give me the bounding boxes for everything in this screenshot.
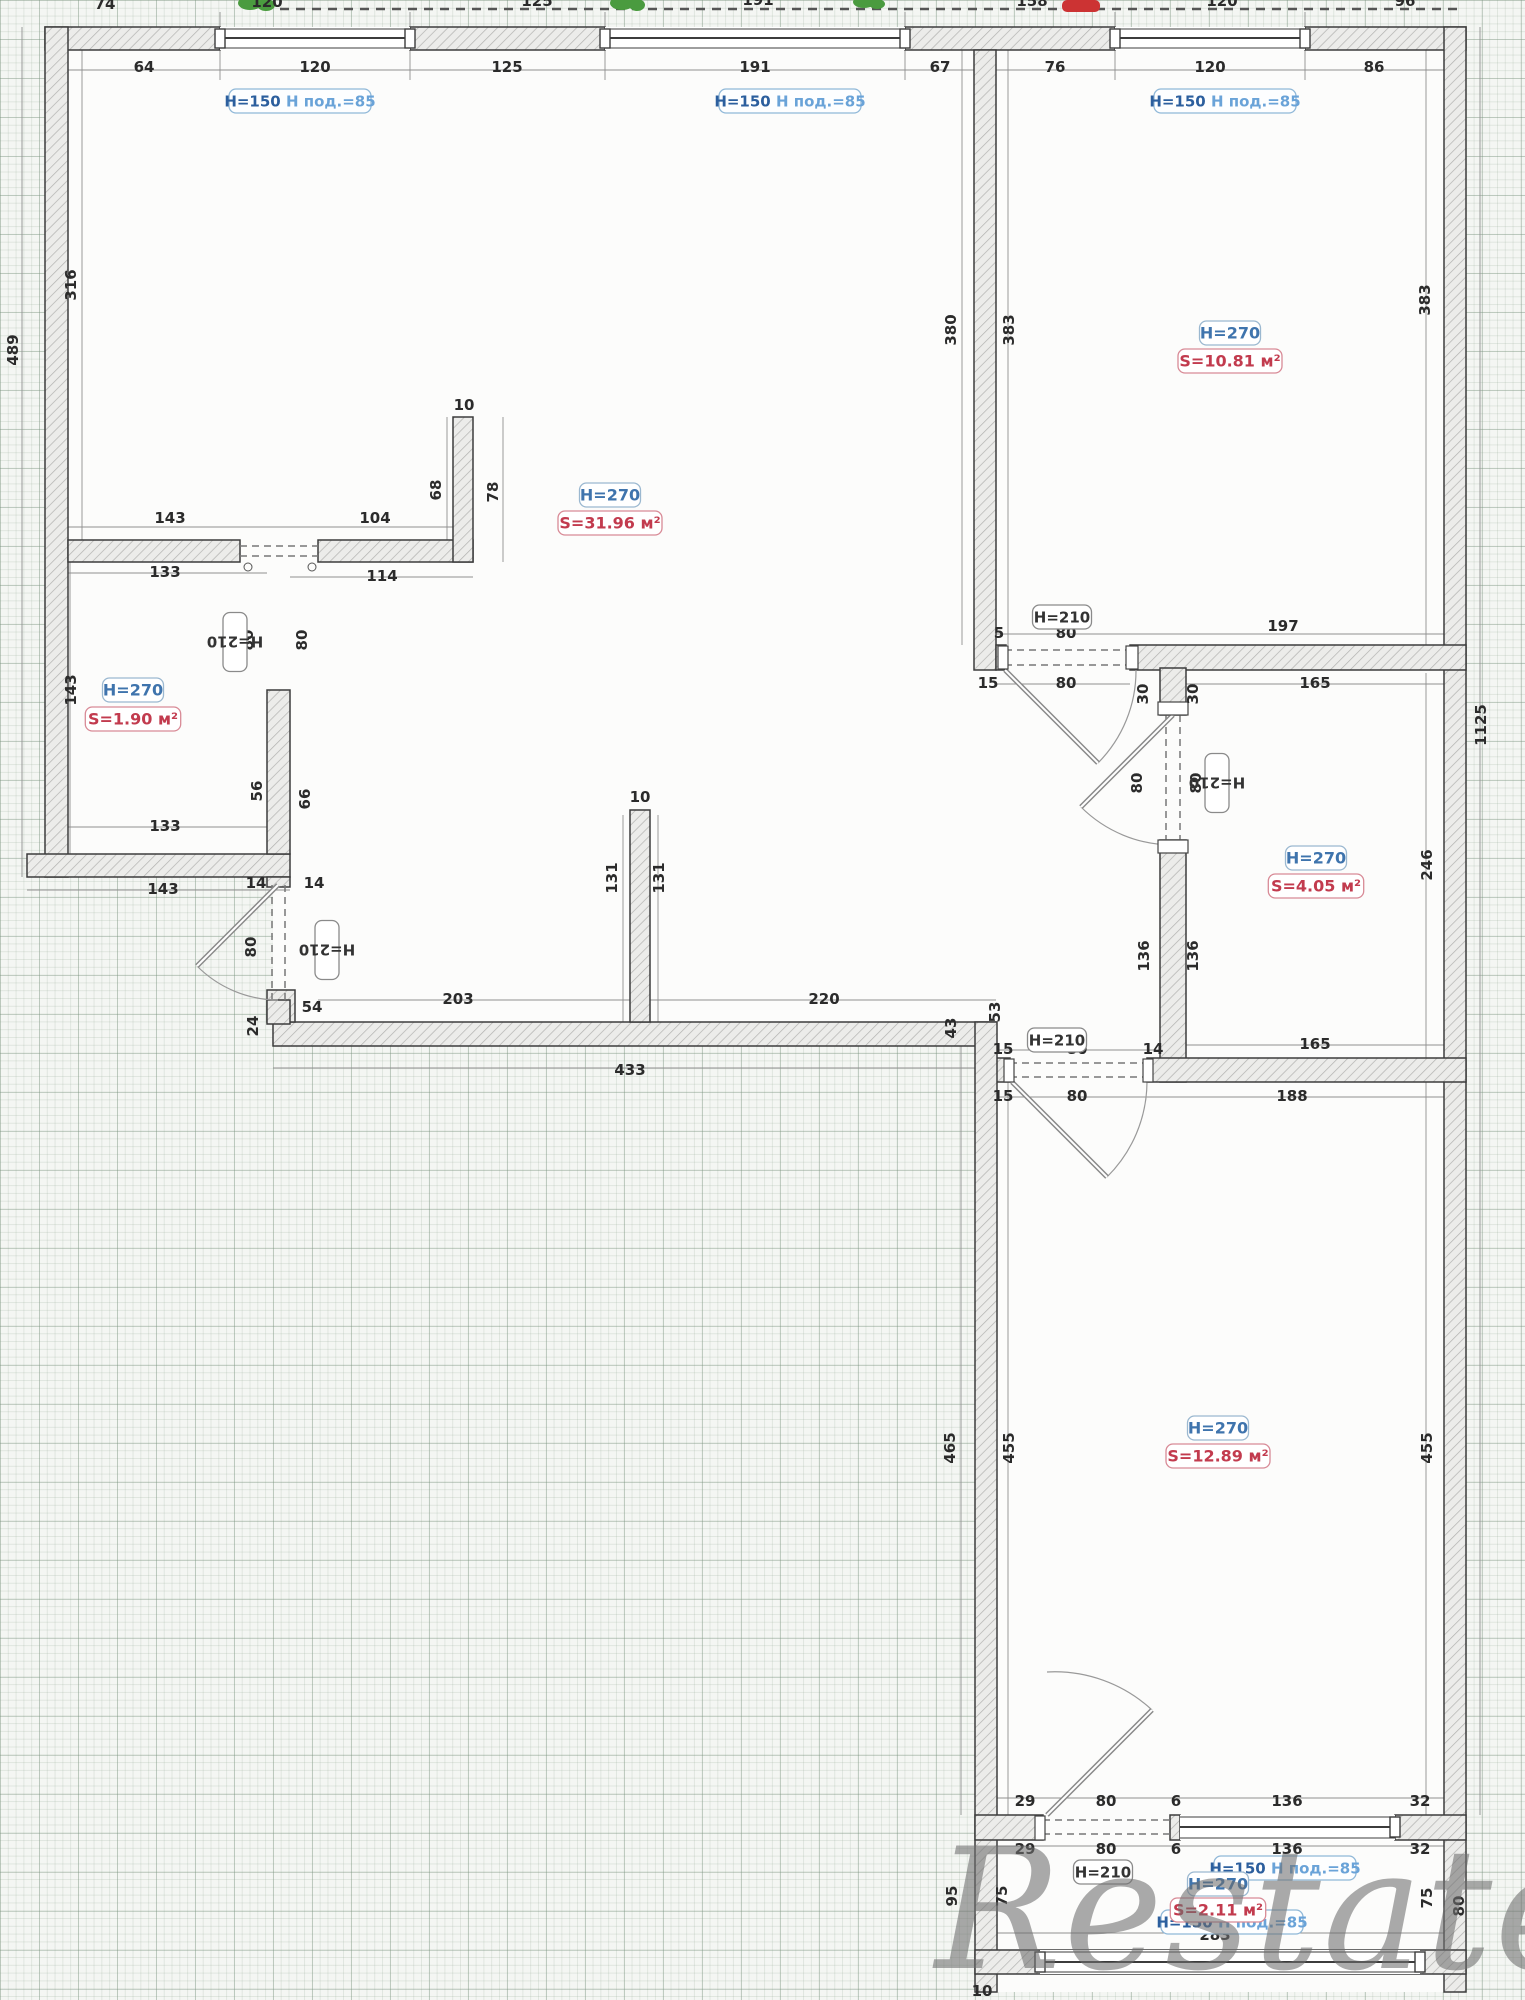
- dim-label: 136: [1271, 1792, 1302, 1810]
- window-height-label: H=150 H под.=85: [224, 89, 375, 113]
- dim-label: 24: [244, 1016, 262, 1037]
- dim-label: 191: [739, 58, 770, 76]
- dim-label: 114: [366, 567, 397, 585]
- dim-label: 29: [1015, 1840, 1036, 1858]
- dim-label: 80: [1128, 773, 1146, 794]
- dim-label: 54: [302, 998, 323, 1016]
- dim-label: 465: [941, 1432, 959, 1463]
- dim-label: 14: [304, 874, 325, 892]
- dim-label: 165: [1299, 674, 1330, 692]
- window-height-text: H=150 H под.=85: [1149, 93, 1300, 111]
- dim-label: 15: [978, 674, 999, 692]
- dim-label: 455: [1418, 1432, 1436, 1463]
- dim-label: 143: [62, 674, 80, 705]
- room-height-label: H=270: [1200, 321, 1261, 345]
- dim-label: 74: [95, 0, 116, 13]
- dim-label: 104: [359, 509, 390, 527]
- door-height-text: H=210: [1029, 1032, 1085, 1050]
- dim-label: 136: [1271, 1840, 1302, 1858]
- dim-label: 64: [134, 58, 155, 76]
- dim-label: 76: [1045, 58, 1066, 76]
- door-height-text: H=210: [1075, 1864, 1131, 1882]
- window: [600, 27, 910, 50]
- dim-label: 80: [1096, 1792, 1117, 1810]
- room-area-text: S=4.05 м²: [1271, 877, 1361, 896]
- dim-label: 86: [1364, 58, 1385, 76]
- door-height-text: H=210: [1189, 774, 1245, 792]
- room-height-label: H=270: [580, 483, 641, 507]
- dim-label: 68: [427, 480, 445, 501]
- plant-icon: [610, 0, 645, 11]
- dim-label: 43: [942, 1018, 960, 1039]
- dim-label: 455: [1000, 1432, 1018, 1463]
- room-height-text: H=270: [580, 486, 640, 505]
- window: [1180, 1815, 1400, 1840]
- dim-label: 197: [1267, 617, 1298, 635]
- dim-label: 80: [293, 630, 311, 651]
- dim-label: 15: [993, 1087, 1014, 1105]
- window-height-text: H=150 H под.=85: [714, 93, 865, 111]
- dim-label: 10: [972, 1982, 993, 2000]
- door-height-text: H=210: [1034, 609, 1090, 627]
- dim-label: 143: [154, 509, 185, 527]
- dim-label: 120: [299, 58, 330, 76]
- window: [1035, 1950, 1425, 1974]
- dim-label: 80: [242, 937, 260, 958]
- dim-label: 53: [986, 1002, 1004, 1023]
- dim-label: 5: [994, 624, 1004, 642]
- dim-label: 131: [650, 862, 668, 893]
- dim-label: 10: [630, 788, 651, 806]
- dim-label: 95: [943, 1886, 961, 1907]
- dim-label: 246: [1418, 849, 1436, 880]
- dim-label: 15: [993, 1040, 1014, 1058]
- dim-label: 188: [1276, 1087, 1307, 1105]
- room-area-label: S=1.90 м²: [85, 707, 180, 731]
- room-area-label: S=2.11 м²: [1170, 1898, 1265, 1922]
- room-area-label: S=10.81 м²: [1178, 349, 1282, 373]
- dim-label: 30: [1184, 684, 1202, 705]
- window: [215, 27, 415, 50]
- door-height-label: H=210: [1028, 1028, 1087, 1052]
- plant-icon: [853, 0, 885, 9]
- window-height-label: H=150 H под.=85: [1149, 89, 1300, 113]
- top-balcony-outline: [238, 0, 1460, 12]
- dim-label: 133: [149, 817, 180, 835]
- dim-label: 158: [1016, 0, 1047, 10]
- room-area-label: S=4.05 м²: [1268, 874, 1363, 898]
- room-height-label: H=270: [1188, 1416, 1249, 1440]
- window: [1110, 27, 1310, 50]
- floor-plan-page: 7412012519115812096641201251916776120863…: [0, 0, 1525, 2000]
- dim-label: 489: [4, 334, 22, 365]
- dim-label: 80: [1096, 1840, 1117, 1858]
- dim-label: 56: [248, 781, 266, 802]
- dim-label: 30: [1134, 684, 1152, 705]
- dim-label: 165: [1299, 1035, 1330, 1053]
- dim-label: 80: [1067, 1087, 1088, 1105]
- dim-label: 125: [521, 0, 552, 10]
- room-area-text: S=1.90 м²: [88, 710, 178, 729]
- dim-label: 66: [296, 789, 314, 810]
- dim-label: 120: [1206, 0, 1237, 10]
- dim-label: 67: [930, 58, 951, 76]
- window-height-label: H=150 H под.=85: [714, 89, 865, 113]
- room-area-label: S=31.96 м²: [558, 511, 662, 535]
- door-height-text: H=210: [299, 941, 355, 959]
- dim-label: 96: [1395, 0, 1416, 10]
- dim-label: 78: [484, 482, 502, 503]
- room-area-text: S=2.11 м²: [1173, 1901, 1263, 1920]
- dim-label: 10: [454, 396, 475, 414]
- door-height-label: H=210: [1074, 1860, 1133, 1884]
- floor-plan-drawing: 7412012519115812096641201251916776120863…: [0, 0, 1525, 2000]
- dim-label: 133: [149, 563, 180, 581]
- dim-label: 14: [246, 874, 267, 892]
- dim-label: 120: [1194, 58, 1225, 76]
- dim-label: 6: [1171, 1792, 1181, 1810]
- dim-label: 433: [614, 1061, 645, 1079]
- room-height-label: H=270: [103, 678, 164, 702]
- dim-label: 6: [1171, 1840, 1181, 1858]
- room-area-text: S=12.89 м²: [1167, 1447, 1268, 1466]
- dim-label: 32: [1410, 1840, 1431, 1858]
- room-area-text: S=10.81 м²: [1179, 352, 1280, 371]
- room-height-text: H=270: [1188, 1875, 1248, 1894]
- room-height-label: H=270: [1188, 1872, 1249, 1896]
- dim-label: 191: [742, 0, 773, 9]
- dim-label: 383: [1416, 284, 1434, 315]
- dim-label: 220: [808, 990, 839, 1008]
- dim-label: 75: [993, 1886, 1011, 1907]
- dim-label: 136: [1184, 940, 1202, 971]
- dim-label: 125: [491, 58, 522, 76]
- room-height-text: H=270: [1286, 849, 1346, 868]
- room-height-label: H=270: [1286, 846, 1347, 870]
- window-height-text: H=150 H под.=85: [224, 93, 375, 111]
- dim-label: 29: [1015, 1792, 1036, 1810]
- dim-label: 383: [1000, 314, 1018, 345]
- dim-label: 316: [62, 269, 80, 300]
- room-height-text: H=270: [1200, 324, 1260, 343]
- room-height-text: H=270: [1188, 1419, 1248, 1438]
- dim-label: 1125: [1472, 704, 1490, 746]
- room-area-text: S=31.96 м²: [559, 514, 660, 533]
- dim-label: 80: [1056, 674, 1077, 692]
- dim-label: 120: [251, 0, 282, 11]
- dim-label: 80: [1450, 1896, 1468, 1917]
- door-height-text: H=210: [207, 633, 263, 651]
- dim-label: 75: [1418, 1888, 1436, 1909]
- dim-label: 136: [1135, 940, 1153, 971]
- dim-label: 14: [1143, 1040, 1164, 1058]
- dim-label: 203: [442, 990, 473, 1008]
- room-area-label: S=12.89 м²: [1166, 1444, 1270, 1468]
- dim-label: 131: [603, 862, 621, 893]
- door-entrance: [197, 885, 285, 1000]
- red-mark: [1062, 0, 1100, 12]
- dim-label: 143: [147, 880, 178, 898]
- dim-label: 32: [1410, 1792, 1431, 1810]
- room-height-text: H=270: [103, 681, 163, 700]
- dim-label: 380: [942, 314, 960, 345]
- door-height-label: H=210: [1033, 605, 1092, 629]
